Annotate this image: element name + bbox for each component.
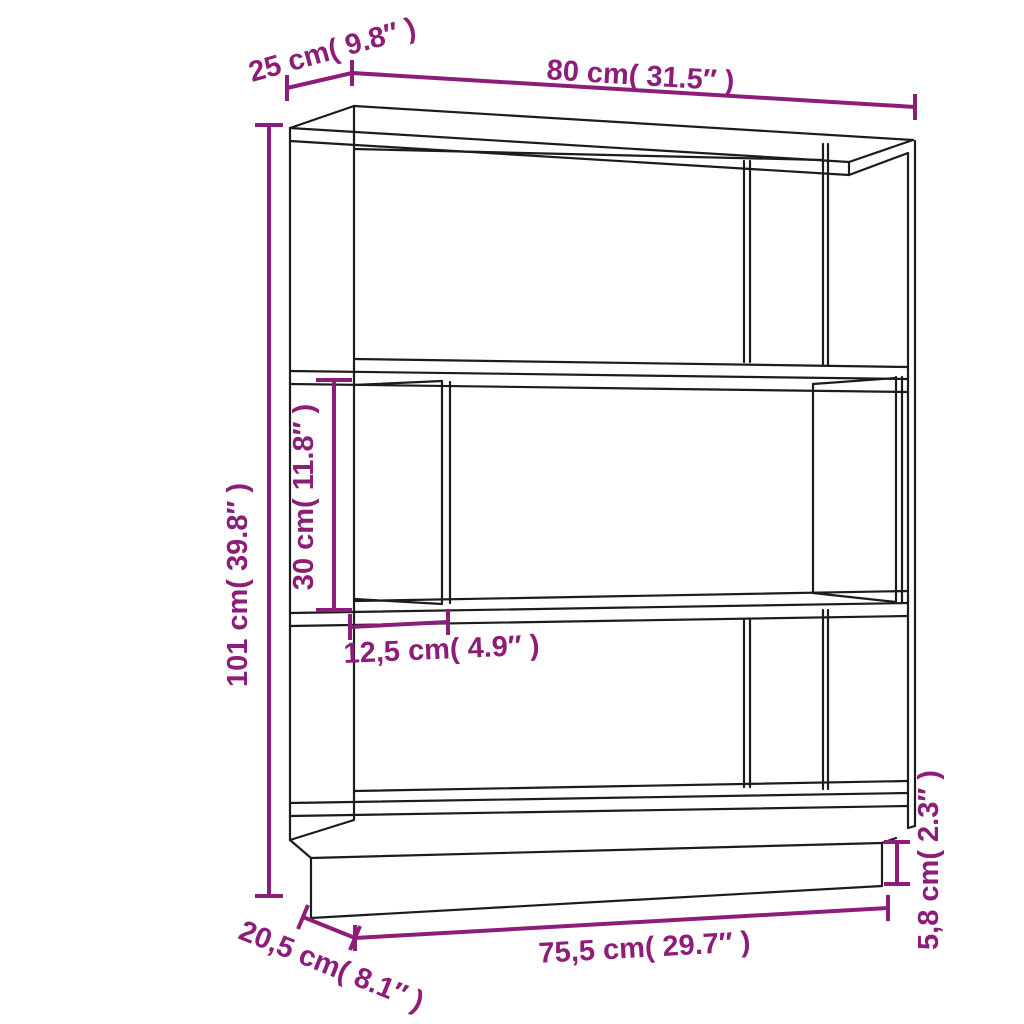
shelf1-front-top-edge xyxy=(290,371,908,379)
tier2-right-bottom-diagonal xyxy=(813,593,896,602)
bookshelf-drawing xyxy=(290,106,915,918)
shelf2-back-edge xyxy=(354,591,908,601)
plinth-left-step xyxy=(290,840,311,858)
dimension-annotations: 25 cm( 9.8″ ) 80 cm( 31.5″ ) 101 cm( 39.… xyxy=(222,12,945,1018)
diagram-svg: 25 cm( 9.8″ ) 80 cm( 31.5″ ) 101 cm( 39.… xyxy=(0,0,1024,1024)
top-band-right-connector xyxy=(849,153,908,175)
dim-total-height: 101 cm( 39.8″ ) xyxy=(222,125,283,896)
dim-top-depth: 25 cm( 9.8″ ) xyxy=(245,12,419,101)
top-right-corner xyxy=(849,140,913,162)
right-side-panel xyxy=(908,141,915,828)
top-back-edge xyxy=(354,106,913,140)
tier3-interior xyxy=(744,610,828,789)
bottom-front-bottom-edge xyxy=(290,806,908,816)
left-bottom-edge xyxy=(290,820,354,840)
dim-opening-height: 30 cm( 11.8″ ) xyxy=(288,380,352,610)
shelf2-front-top-edge xyxy=(290,603,908,613)
tier1-interior xyxy=(744,144,828,365)
dim-compartment-width-line xyxy=(350,622,448,627)
plinth-top-edge xyxy=(311,843,882,858)
shelf1 xyxy=(290,359,908,392)
top-panel xyxy=(290,106,913,175)
dimension-diagram: 25 cm( 9.8″ ) 80 cm( 31.5″ ) 101 cm( 39.… xyxy=(0,0,1024,1024)
dim-compartment-width: 12,5 cm( 4.9″ ) xyxy=(343,609,540,670)
dim-base-width: 75,5 cm( 29.7″ ) xyxy=(355,895,888,970)
dim-plinth-height-label: 5,8 cm( 2.3″ ) xyxy=(913,770,945,950)
shelf1-front-bottom-edge xyxy=(290,384,908,392)
shelf2 xyxy=(290,591,908,626)
bottom-front-top-edge xyxy=(290,793,908,803)
bottom-back-edge xyxy=(354,781,908,791)
tier2-interior xyxy=(354,377,902,604)
dim-opening-height-label: 30 cm( 11.8″ ) xyxy=(288,404,320,590)
dim-plinth-height: 5,8 cm( 2.3″ ) xyxy=(884,770,945,950)
dim-top-width-label: 80 cm( 31.5″ ) xyxy=(546,54,736,97)
bottom-panel xyxy=(290,781,908,816)
dim-compartment-width-label: 12,5 cm( 4.9″ ) xyxy=(343,629,540,670)
dim-total-height-label: 101 cm( 39.8″ ) xyxy=(222,483,254,687)
dim-base-depth-line xyxy=(303,917,355,938)
top-left-corner xyxy=(290,106,354,128)
plinth-base xyxy=(290,838,896,918)
shelf1-back-edge xyxy=(354,359,908,367)
dim-base-depth: 20,5 cm( 8.1″ ) xyxy=(234,905,428,1018)
dim-base-width-label: 75,5 cm( 29.7″ ) xyxy=(538,926,752,970)
